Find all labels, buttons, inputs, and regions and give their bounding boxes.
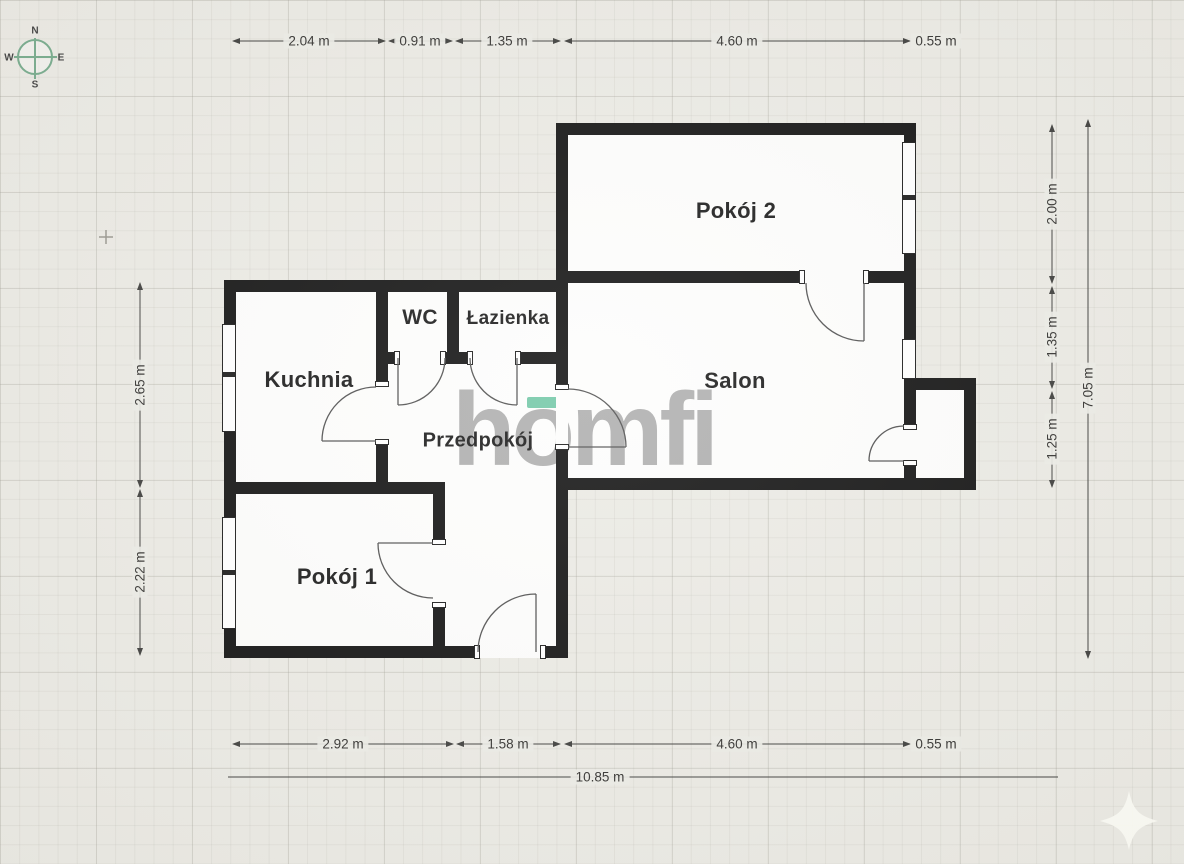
dim-bottom-2: 1.58 m bbox=[482, 737, 533, 752]
room-label-wc: WC bbox=[402, 306, 438, 330]
dim-bottom-3: 4.60 m bbox=[711, 737, 762, 752]
dim-right-total: 7.05 m bbox=[1081, 362, 1096, 413]
compass-north-label: N bbox=[31, 26, 38, 37]
room-label-kuchnia: Kuchnia bbox=[265, 367, 354, 393]
dim-top-2: 0.91 m bbox=[394, 34, 445, 49]
four-point-star-icon bbox=[1094, 786, 1164, 856]
floor-plan-canvas: homfi bbox=[0, 0, 1184, 864]
dim-bottom-total: 10.85 m bbox=[571, 770, 630, 785]
dim-top-1: 2.04 m bbox=[283, 34, 334, 49]
dim-right-3: 1.25 m bbox=[1045, 413, 1060, 464]
dim-right-1: 2.00 m bbox=[1045, 178, 1060, 229]
dim-top-3: 1.35 m bbox=[481, 34, 532, 49]
dim-top-4: 4.60 m bbox=[711, 34, 762, 49]
room-label-pokoj1: Pokój 1 bbox=[297, 564, 377, 590]
dim-top-5: 0.55 m bbox=[910, 34, 961, 49]
dim-bottom-4: 0.55 m bbox=[910, 737, 961, 752]
room-label-lazienka: Łazienka bbox=[467, 308, 550, 330]
room-label-pokoj2: Pokój 2 bbox=[696, 198, 776, 224]
dim-left-2: 2.22 m bbox=[133, 546, 148, 597]
compass-east-label: E bbox=[58, 53, 65, 64]
room-label-przedpokoj: Przedpokój bbox=[423, 430, 534, 453]
dim-right-2: 1.35 m bbox=[1045, 311, 1060, 362]
dim-left-1: 2.65 m bbox=[133, 359, 148, 410]
room-label-salon: Salon bbox=[704, 368, 765, 394]
dim-bottom-1: 2.92 m bbox=[317, 737, 368, 752]
dimension-lines-layer bbox=[0, 0, 1184, 864]
compass-south-label: S bbox=[32, 80, 39, 91]
compass-west-label: W bbox=[4, 53, 13, 64]
